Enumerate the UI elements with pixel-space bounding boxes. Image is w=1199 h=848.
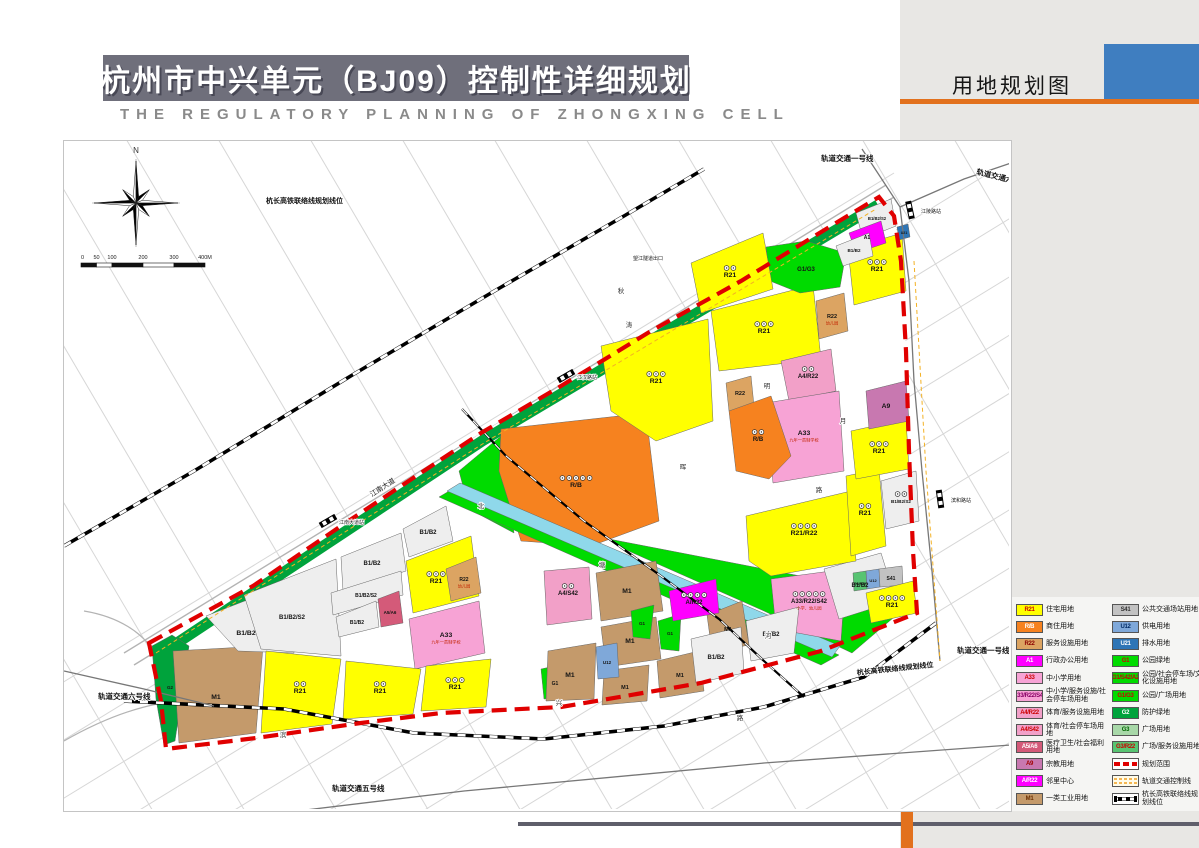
zone-label-R22: R22 [827,314,837,320]
zone-label-R21: R21 [650,378,663,385]
legend-swatch-R22: R22 [1016,638,1043,650]
zone-label-G1: G1 [639,621,646,626]
footer-orange-bar [901,812,913,848]
legend-column-left: R21住宅用地R/B商住用地R22服务设施用地A1行政办公用地A33中小学用地A… [1016,601,1108,807]
zone-label-B1/B2: B1/B2 [363,561,381,567]
legend-swatch-G1/G3: G1/G3 [1112,690,1139,702]
legend-item: G1/G3公园/广场用地 [1112,687,1199,704]
zone-label-S41: S41 [887,576,896,582]
map-label: 轨道交通六号线 [98,691,151,701]
zone-label-R/B: R/B [753,437,764,443]
legend-column-right: S41公共交通场站用地U12供电用地U21排水用地G1公园绿地G1/S42/A2… [1112,601,1199,807]
legend-swatch-U21: U21 [1112,638,1139,650]
zone-sublabel: 九年一贯制学校 [789,437,819,444]
road-name-char: 路 [816,485,823,494]
station-label: 江南大道站 [339,519,364,526]
sheet-label: 用地规划图 [952,70,1072,100]
road-name-char: 秋 [618,286,625,295]
legend-label: 杭长高铁联络线规划线位 [1142,791,1199,806]
legend-label: 防护绿地 [1142,709,1199,716]
legend-item: M1一类工业用地 [1016,790,1108,807]
road-name-char: 河 [765,632,772,640]
legend: R21住宅用地R/B商住用地R22服务设施用地A1行政办公用地A33中小学用地A… [1012,597,1199,811]
scale-tick-label: 50 [93,255,99,261]
legend-label: 供电用地 [1142,623,1199,630]
metro-station: 滨和路站 [936,490,971,509]
legend-item: A4/S42体育/社会停车场用地 [1016,721,1108,738]
footer-gray-rule [518,822,1199,826]
zone-label-R21: R21 [449,684,462,691]
legend-label: 公园绿地 [1142,657,1199,664]
legend-label: 广场用地 [1142,726,1199,733]
legend-item: 杭长高铁联络线规划线位 [1112,790,1199,807]
station-label: 江汉路站 [577,374,597,381]
zone-sublabel: 幼儿园 [458,583,471,590]
legend-swatch-hsr-line [1112,793,1139,805]
zone-label-R21: R21 [871,266,884,273]
zone-label-R22: R22 [735,391,745,397]
zone-sublabel: 九年一贯制学校 [431,639,461,646]
zone-label-G2: G2 [167,685,174,690]
legend-swatch-A1: A1 [1016,655,1043,667]
road-name-char: 晖 [680,463,687,471]
legend-swatch-R21: R21 [1016,604,1043,616]
legend-label: 轨道交通控制线 [1142,778,1199,785]
road-name-char: 塘 [599,560,606,569]
legend-item: G2防护绿地 [1112,704,1199,721]
legend-item: S41公共交通场站用地 [1112,601,1199,618]
road-name-char: 明 [764,382,771,390]
legend-label: 商住用地 [1046,623,1108,630]
map-label: 杭长高铁联络线规划线位 [856,660,934,677]
road-name-char: 北 [478,502,485,510]
zone-label-A5/A6: A5/A6 [384,610,397,615]
legend-label: 医疗卫生/社会福利用地 [1046,740,1108,755]
legend-item: A1行政办公用地 [1016,653,1108,670]
scale-tick-label: 400M [198,255,212,261]
road-name-char: 兴 [556,698,563,707]
road-name-char: 滨 [280,730,287,739]
legend-label: 广场/服务设施用地 [1142,743,1199,750]
zone-label-G3/R22: G3/R22 [854,582,866,586]
station-label: 滨和路站 [951,497,971,504]
legend-swatch-U12: U12 [1112,621,1139,633]
scale-tick-label: 0 [81,255,84,261]
zone-label-U21: U21 [901,231,908,235]
legend-swatch-A5/A6: A5/A6 [1016,741,1043,753]
legend-swatch-R/B: R/B [1016,621,1043,633]
zone-label-B1/B2: B1/B2 [847,248,860,253]
legend-swatch-G2: G2 [1112,707,1139,719]
zone-label-B1/B2: B1/B2 [419,530,437,536]
zone-label-M1: M1 [724,627,732,633]
legend-item: 轨道交通控制线 [1112,773,1199,790]
zone-label-B1/B2/S2: B1/B2/S2 [279,615,306,621]
zone-label-M1: M1 [621,685,629,691]
legend-item: G3/R22广场/服务设施用地 [1112,739,1199,756]
legend-swatch-G1: G1 [1112,655,1139,667]
zone-label-B1/B2: B1/B2 [707,655,725,661]
zone-sublabel: 幼儿园 [826,320,839,327]
zone-label-U12: U12 [869,578,877,583]
legend-swatch-M1: M1 [1016,793,1043,805]
road-name-char: 涛 [626,320,633,329]
legend-item: A/R22邻里中心 [1016,773,1108,790]
legend-swatch-A9: A9 [1016,758,1043,770]
legend-item: A33/R22/S42中小学/服务设施/社会停车场用地 [1016,687,1108,704]
road-name-char: 月 [840,417,847,425]
legend-label: 规划范围 [1142,761,1199,768]
scale-tick-label: 300 [169,255,178,261]
map-canvas[interactable]: G2M1B1/B2B1/B2/S2B1/B2B1/B2/S2B1/B2A5/A6… [63,140,1012,812]
zone-label-A33/R22/S42: A33/R22/S42 [791,599,828,605]
legend-swatch-rail-control-line [1112,775,1139,787]
corner-accent-block [1104,44,1199,100]
zone-label-A33: A33 [798,430,811,437]
zone-label-M1: M1 [211,694,221,701]
zone-label-A4/S42: A4/S42 [558,591,579,597]
zone-label-R21: R21 [724,272,737,279]
map-label: 望江隧道出口 [633,255,663,262]
legend-item: A4/R22体育/服务设施用地 [1016,704,1108,721]
legend-label: 一类工业用地 [1046,795,1108,802]
map-label: 杭长高铁联络线规划线位 [266,196,343,205]
zone-label-G1/G3: G1/G3 [797,267,815,273]
zone-label-A4/R22: A4/R22 [798,374,819,380]
legend-swatch-A33/R22/S42: A33/R22/S42 [1016,690,1043,702]
legend-swatch-boundary-line [1112,758,1139,770]
zone-label-R21: R21 [873,448,886,455]
legend-label: 服务设施用地 [1046,640,1108,647]
zone-label-G1: G1 [552,681,559,687]
zone-label-A9: A9 [882,403,891,410]
legend-swatch-G1/S42/A2: G1/S42/A2 [1112,672,1139,684]
scale-tick-label: 100 [107,255,116,261]
legend-label: 公共交通场站用地 [1142,606,1199,613]
legend-label: 排水用地 [1142,640,1199,647]
zone-label-M1: M1 [676,673,684,679]
compass-north-label: N [133,146,139,155]
legend-swatch-A/R22: A/R22 [1016,775,1043,787]
legend-item: A33中小学用地 [1016,670,1108,687]
legend-item: U21排水用地 [1112,635,1199,652]
zone-label-M1: M1 [625,638,635,645]
scale-tick-label: 200 [138,255,147,261]
zone-label-R21: R21 [430,578,443,585]
zone-label-R21: R21 [294,688,307,695]
zone-label-R22: R22 [459,577,468,583]
zone-label-B1/B2/S2: B1/B2/S2 [355,593,377,599]
legend-item: R/B商住用地 [1016,618,1108,635]
page-title: 杭州市中兴单元（BJ09）控制性详细规划 [103,55,689,101]
zone-label-U12: U12 [603,660,612,665]
scale-bar: 050100200300400M [81,255,212,267]
legend-item: U12供电用地 [1112,618,1199,635]
legend-swatch-A33: A33 [1016,672,1043,684]
legend-item: G3广场用地 [1112,721,1199,738]
station-label: 江陵路站 [921,208,941,215]
legend-swatch-A4/R22: A4/R22 [1016,707,1043,719]
zone-label-R21/R22: R21/R22 [791,530,818,537]
zone-label-B1/B2: B1/B2 [236,630,255,637]
compass-rose: N [92,146,180,247]
legend-label: 公园/广场用地 [1142,692,1199,699]
metro-line [900,163,1009,207]
map-label: 轨道交通一号线 [821,153,874,163]
legend-item: 规划范围 [1112,756,1199,773]
map-label: 轨道交通五号线 [332,783,385,793]
zone-sublabel: 小学、幼儿园 [796,605,821,612]
legend-label: 公园/社会停车场/文化设施用地 [1142,671,1199,686]
legend-swatch-G3/R22: G3/R22 [1112,741,1139,753]
legend-item: R22服务设施用地 [1016,635,1108,652]
road-name-char: 路 [737,713,744,722]
legend-item: G1/S42/A2公园/社会停车场/文化设施用地 [1112,670,1199,687]
legend-label: 中小学用地 [1046,675,1108,682]
zone-label-A33: A33 [440,632,453,639]
legend-swatch-A4/S42: A4/S42 [1016,724,1043,736]
zone-label-G1: G1 [667,631,674,636]
zone-label-R21: R21 [886,602,899,609]
zone-label-A/R22: A/R22 [685,600,703,606]
legend-label: 行政办公用地 [1046,657,1108,664]
legend-item: R21住宅用地 [1016,601,1108,618]
legend-swatch-S41: S41 [1112,604,1139,616]
legend-label: 住宅用地 [1046,606,1108,613]
page-subtitle: THE REGULATORY PLANNING OF ZHONGXING CEL… [120,106,706,123]
legend-label: 中小学/服务设施/社会停车场用地 [1046,688,1108,703]
zone-label-M1: M1 [622,588,632,595]
zone-label-R/B: R/B [570,482,582,489]
zone-label-R21: R21 [859,510,872,517]
map-label: 轨道交通一号线 [957,645,1009,655]
legend-swatch-G3: G3 [1112,724,1139,736]
zone-label-R21: R21 [374,688,387,695]
zone-label-A1: A1 [864,235,871,241]
legend-label: 邻里中心 [1046,778,1108,785]
zone-label-R21: R21 [758,328,771,335]
legend-label: 宗教用地 [1046,761,1108,768]
legend-item: A5/A6医疗卫生/社会福利用地 [1016,739,1108,756]
legend-label: 体育/社会停车场用地 [1046,723,1108,738]
zone-label-M1: M1 [565,672,575,679]
zone-label-B1/B2/S2: B1/B2/S2 [891,499,911,504]
legend-item: G1公园绿地 [1112,653,1199,670]
zone-label-B1/B2: B1/B2 [350,620,364,626]
metro-line [214,745,1009,809]
legend-label: 体育/服务设施用地 [1046,709,1108,716]
zone-label-B1/B2/S2: B1/B2/S2 [868,216,887,221]
legend-item: A9宗教用地 [1016,756,1108,773]
metro-station: 江陵路站 [905,201,941,220]
